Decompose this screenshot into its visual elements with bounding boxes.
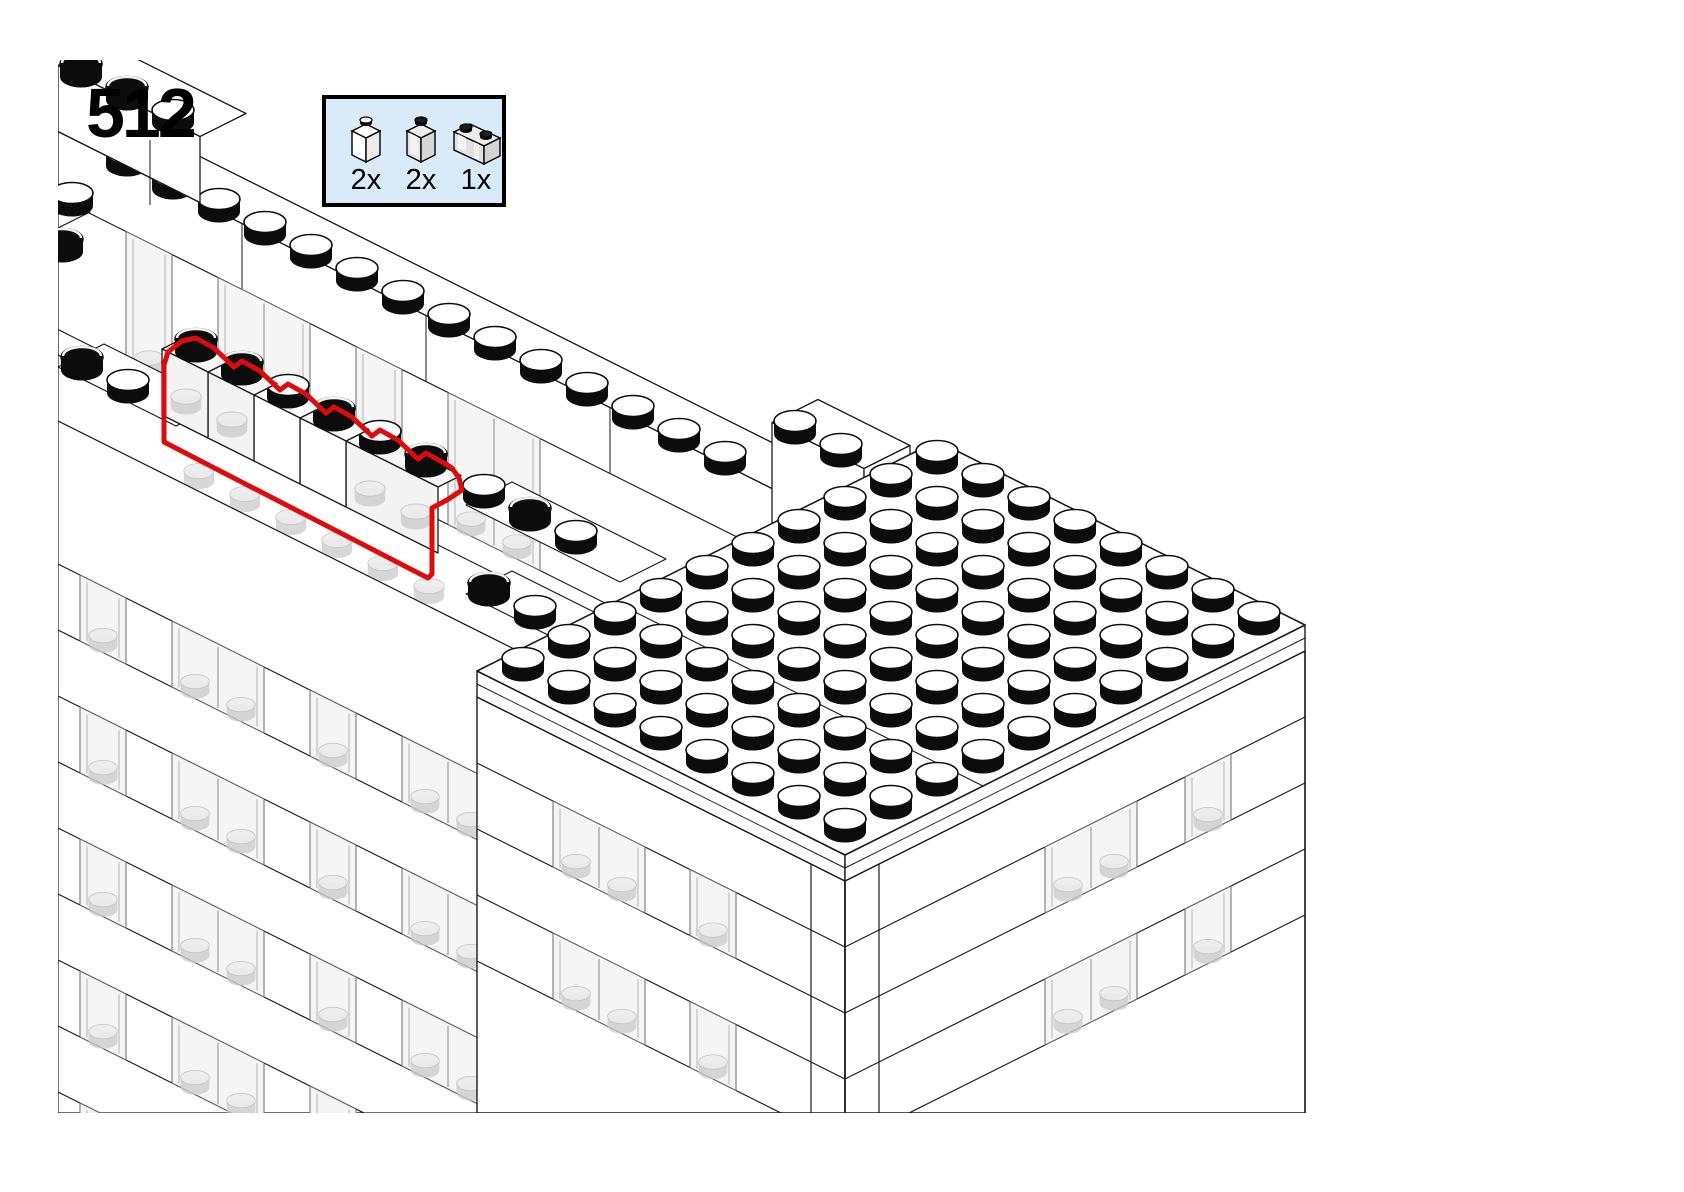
part-item: 2x <box>338 114 394 195</box>
brick-1x1-white-icon <box>341 114 391 166</box>
building-illustration <box>0 0 1684 1192</box>
part-count: 2x <box>338 166 394 195</box>
brick-1x1-trans-clear-icon <box>396 114 446 166</box>
instruction-page: 512 2x 2x <box>0 0 1684 1192</box>
part-count: 2x <box>394 166 448 195</box>
step-number: 512 <box>86 78 194 148</box>
part-item: 2x <box>394 114 448 195</box>
brick-1x2-trans-clear-icon <box>446 114 508 166</box>
part-item: 1x <box>446 114 506 195</box>
part-count: 1x <box>446 166 506 195</box>
parts-callout: 2x 2x <box>322 95 506 207</box>
